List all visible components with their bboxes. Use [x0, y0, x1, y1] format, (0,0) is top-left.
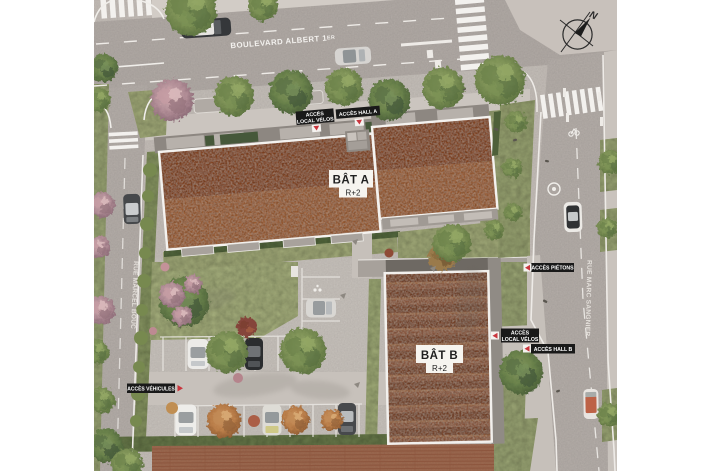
- svg-text:R+2: R+2: [346, 189, 361, 198]
- svg-text:ACCÈS: ACCÈS: [511, 329, 530, 337]
- svg-text:LOCAL VÉLOS: LOCAL VÉLOS: [502, 335, 539, 343]
- svg-text:ACCÈS HALL B: ACCÈS HALL B: [534, 345, 573, 353]
- svg-text:BÂT A: BÂT A: [333, 174, 370, 187]
- svg-text:ACCÈS VÉHICULES: ACCÈS VÉHICULES: [127, 385, 175, 393]
- svg-text:R+2: R+2: [432, 364, 447, 373]
- svg-text:BÂT B: BÂT B: [421, 349, 458, 362]
- svg-text:ACCÈS PIÉTONS: ACCÈS PIÉTONS: [531, 264, 574, 272]
